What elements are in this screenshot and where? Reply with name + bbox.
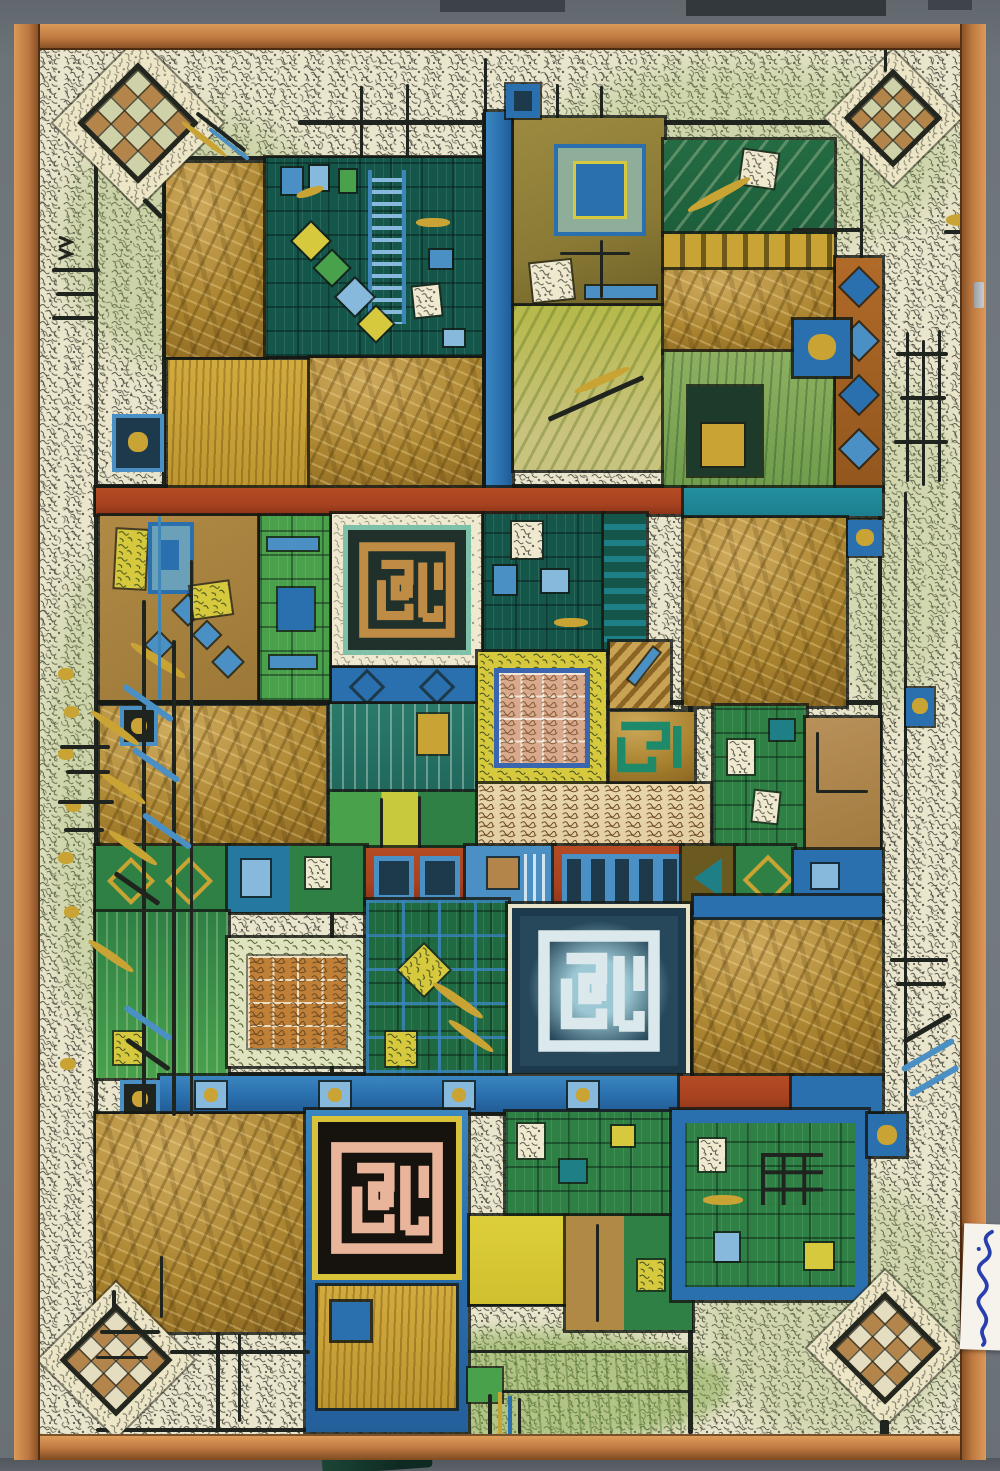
sketch-line: [816, 732, 819, 792]
framed-glyph-square: [124, 1084, 156, 1114]
green-blue-grid-panel: [260, 516, 330, 700]
sketch-line: [418, 796, 421, 850]
frame-top: [14, 24, 986, 50]
decor-square: [340, 170, 356, 192]
blue-bar: [658, 854, 682, 908]
sketch-line: [560, 252, 630, 255]
cluster-line-v: [922, 340, 925, 486]
red-band: [96, 488, 684, 514]
yellow-calligraphy-card: [115, 529, 148, 588]
dark-green-diagonal-panel: [664, 140, 834, 234]
calligraphy-card: [699, 1139, 725, 1171]
tan-decor-panel: [100, 516, 258, 700]
maze-field: [520, 916, 678, 1066]
decor-square: [542, 570, 568, 592]
decor-square: [612, 1126, 634, 1146]
gold-dot: [58, 668, 74, 680]
kufic-maze-strokes: [318, 1122, 456, 1274]
frame-left: [14, 24, 40, 1460]
decor-square: [282, 168, 302, 194]
yellow-card: [386, 1032, 416, 1066]
kufic-green-on-gold: [610, 712, 694, 782]
decor-square: [770, 720, 794, 740]
gold-textured-panel-large: [694, 920, 882, 1078]
gold-brushed-panel: [168, 360, 310, 490]
decor-square: [242, 860, 270, 896]
blue-bar: [634, 854, 658, 908]
sketch-line: [596, 1224, 599, 1322]
yellow-green-hatched-panel: [514, 306, 664, 470]
green-small-square: [468, 1368, 502, 1402]
bottom-stick: [518, 1398, 521, 1434]
blue-diamond: [841, 377, 878, 414]
dash: [52, 268, 100, 272]
green-patch-panel: [506, 1112, 692, 1216]
gold-dab: [703, 1195, 743, 1205]
blue-stick: [629, 648, 660, 684]
yellow-calligraphy-card: [190, 582, 232, 619]
blue-gold-square: [794, 320, 850, 376]
dash: [894, 440, 948, 444]
calligraphy-card: [530, 260, 574, 302]
gold-card: [702, 424, 744, 466]
blue-diamond: [841, 269, 878, 306]
wall-object-shadow: [686, 0, 886, 16]
wall-object-shadow: [928, 0, 972, 10]
grid-line-v: [904, 492, 907, 1112]
wall-object-shadow: [440, 0, 565, 12]
ladder-motif: [368, 170, 406, 324]
blue-square: [278, 588, 314, 630]
grid-line-v: [216, 1330, 220, 1430]
gold-dot: [60, 1058, 76, 1070]
pink-grid: [499, 673, 585, 763]
yellow-panel: [470, 1216, 566, 1304]
arabic-signature-script: [960, 1223, 1000, 1351]
blue-band-segment: [792, 1076, 882, 1112]
dash: [56, 292, 96, 296]
magic-square-panel: [478, 652, 606, 784]
kufic-maze-pink: [318, 1122, 456, 1274]
blue-window: [420, 856, 460, 900]
diamond-outline: [349, 669, 386, 706]
black-grill: [761, 1153, 823, 1205]
dash: [896, 352, 948, 356]
blue-diamond: [194, 622, 219, 647]
kufic-maze-white: [508, 904, 690, 1078]
tan-square: [488, 858, 518, 888]
decor-square: [812, 864, 838, 888]
gold-card: [418, 714, 448, 754]
green-cards-panel: [714, 706, 806, 854]
band-teal-patches: [228, 846, 366, 912]
blue-gold-square: [506, 84, 540, 118]
cluster-line-v: [172, 640, 176, 1116]
diamond-outline: [419, 669, 456, 706]
blue-gold-square: [868, 1114, 906, 1156]
white-dashes: [524, 854, 546, 904]
green-vertical-panel: [96, 912, 228, 1078]
red-band-segment: [680, 1076, 792, 1112]
decor-square: [805, 1243, 833, 1269]
sketch-line: [380, 798, 383, 848]
decor-bar: [586, 286, 656, 298]
blue-bar: [586, 854, 610, 908]
dash: [100, 1330, 160, 1334]
gold-dab: [416, 218, 450, 227]
decor-square: [444, 330, 464, 346]
band-square: [196, 1082, 226, 1108]
teal-patch-panel: [484, 514, 602, 654]
diamond-tick: [112, 1290, 116, 1308]
calligraphy-card: [518, 1124, 544, 1158]
decor-square: [494, 566, 516, 594]
calligraphy-card: [413, 285, 442, 318]
band-green-gold-diamonds: [96, 846, 228, 912]
maze-surround: [512, 908, 686, 1074]
gold-dab: [573, 364, 631, 396]
calligraphy-card: [752, 791, 779, 823]
blue-square: [332, 1302, 370, 1340]
dash: [52, 316, 98, 320]
patchwork-core: [685, 1123, 855, 1287]
olive-panel: [514, 118, 664, 304]
blue-bar: [268, 538, 318, 550]
calligraphy-card: [306, 858, 330, 888]
blue-gold-square: [906, 688, 934, 726]
corner-diamond-checkerboard-br: [830, 1293, 940, 1403]
decor-diamond: [315, 251, 349, 285]
band-square: [444, 1082, 474, 1108]
bottom-stick: [488, 1394, 492, 1436]
blue-window: [374, 856, 414, 900]
photograph-of-painting: [0, 0, 1000, 1471]
kufic-maze-gold: [332, 514, 482, 666]
band-square: [568, 1082, 598, 1108]
dash: [890, 958, 948, 962]
grid-line-h: [455, 1350, 693, 1353]
gold-brushed-subpanel: [318, 1286, 456, 1408]
blue-band: [160, 1076, 680, 1112]
decor-square: [430, 250, 452, 268]
bottom-stick-blue: [508, 1396, 512, 1436]
kufic-strokes: [610, 712, 694, 782]
gold-textured-panel: [166, 163, 266, 357]
yellow-card: [638, 1260, 664, 1290]
zigzag-glyph: [58, 236, 74, 262]
kufic-maze-strokes: [520, 916, 678, 1066]
gold-textured-panel: [310, 358, 482, 490]
frame-hardware: [974, 282, 984, 308]
kufic-maze-strokes: [348, 530, 466, 650]
decor-square: [715, 1233, 739, 1261]
corner-diamond-checkerboard-bl: [61, 1305, 171, 1415]
blue-strip: [694, 896, 882, 922]
dash: [66, 770, 110, 774]
calligraphy-card: [512, 522, 542, 558]
framed-glyph-square: [116, 418, 160, 468]
teal-grid-panel: [330, 704, 482, 792]
dash: [170, 1350, 310, 1354]
dash: [58, 800, 114, 804]
teal-patchwork-panel: [266, 158, 482, 356]
corner-diamond-checkerboard-tr: [845, 70, 941, 166]
sketch-line: [158, 516, 161, 700]
gold-dab: [686, 174, 752, 215]
cluster-line-v: [160, 1256, 163, 1318]
blue-maze-block: [306, 1110, 468, 1432]
teal-band: [684, 488, 882, 516]
decor-square: [560, 1160, 586, 1182]
gold-dot: [64, 706, 79, 718]
signature-card: [960, 1223, 1000, 1351]
calligraphy-card: [728, 740, 754, 774]
diamond-line: [792, 228, 864, 232]
tan-panel: [806, 718, 880, 854]
gold-bars-band: [664, 234, 834, 270]
dash: [60, 745, 110, 749]
blue-bordered-green-patchwork: [672, 1110, 868, 1300]
frame-bottom: [14, 1434, 986, 1460]
gold-dot: [58, 748, 74, 760]
teal-striped-panel: [604, 514, 646, 652]
navy-center: [514, 91, 532, 111]
sketch-line: [816, 790, 868, 793]
blue-diamond: [841, 431, 878, 468]
grid-line-v: [238, 1334, 241, 1422]
dash: [96, 1356, 148, 1359]
dash: [896, 982, 946, 986]
grid-line-v: [484, 58, 487, 114]
blue-diamond: [214, 648, 242, 676]
inner-blue-square: [576, 164, 624, 216]
cluster-line-v: [190, 560, 193, 1116]
blue-divider-strip: [486, 112, 512, 492]
grid-line-v: [360, 86, 363, 158]
blue-bar: [610, 854, 634, 908]
painting-canvas: [0, 0, 1000, 1471]
gold-dab: [554, 618, 588, 627]
corner-diamond-checkerboard-tl: [78, 63, 198, 183]
band-red-windows: [366, 848, 466, 904]
decor-diamond: [293, 223, 330, 260]
numeral-marks: [499, 673, 585, 763]
glyph-grid-panel: [228, 938, 366, 1066]
gold-textured-panel-large: [684, 518, 846, 706]
dash: [64, 828, 104, 832]
green-blue-dense-grid: [366, 900, 508, 1080]
blue-diamond-band: [332, 668, 482, 702]
grid-line-v: [406, 84, 409, 162]
glyph-marks: [248, 956, 346, 1048]
gold-dot: [64, 906, 79, 918]
orange-grid: [248, 956, 346, 1048]
blue-bar: [562, 854, 586, 908]
green-yellow-patch: [330, 792, 482, 854]
bottom-stick-gold: [498, 1392, 502, 1438]
band-red-blue-bars: [554, 846, 682, 908]
blue-gold-square: [848, 520, 882, 556]
gold-dot: [58, 852, 74, 864]
teal-chevron: [694, 858, 722, 898]
maze-field: [343, 525, 471, 655]
sketch-line: [600, 240, 603, 298]
dash: [900, 396, 946, 400]
grid-line-v: [556, 84, 559, 120]
band-square: [320, 1082, 350, 1108]
blue-bar: [270, 656, 316, 668]
gold-diagonal-small-panel: [610, 642, 670, 708]
